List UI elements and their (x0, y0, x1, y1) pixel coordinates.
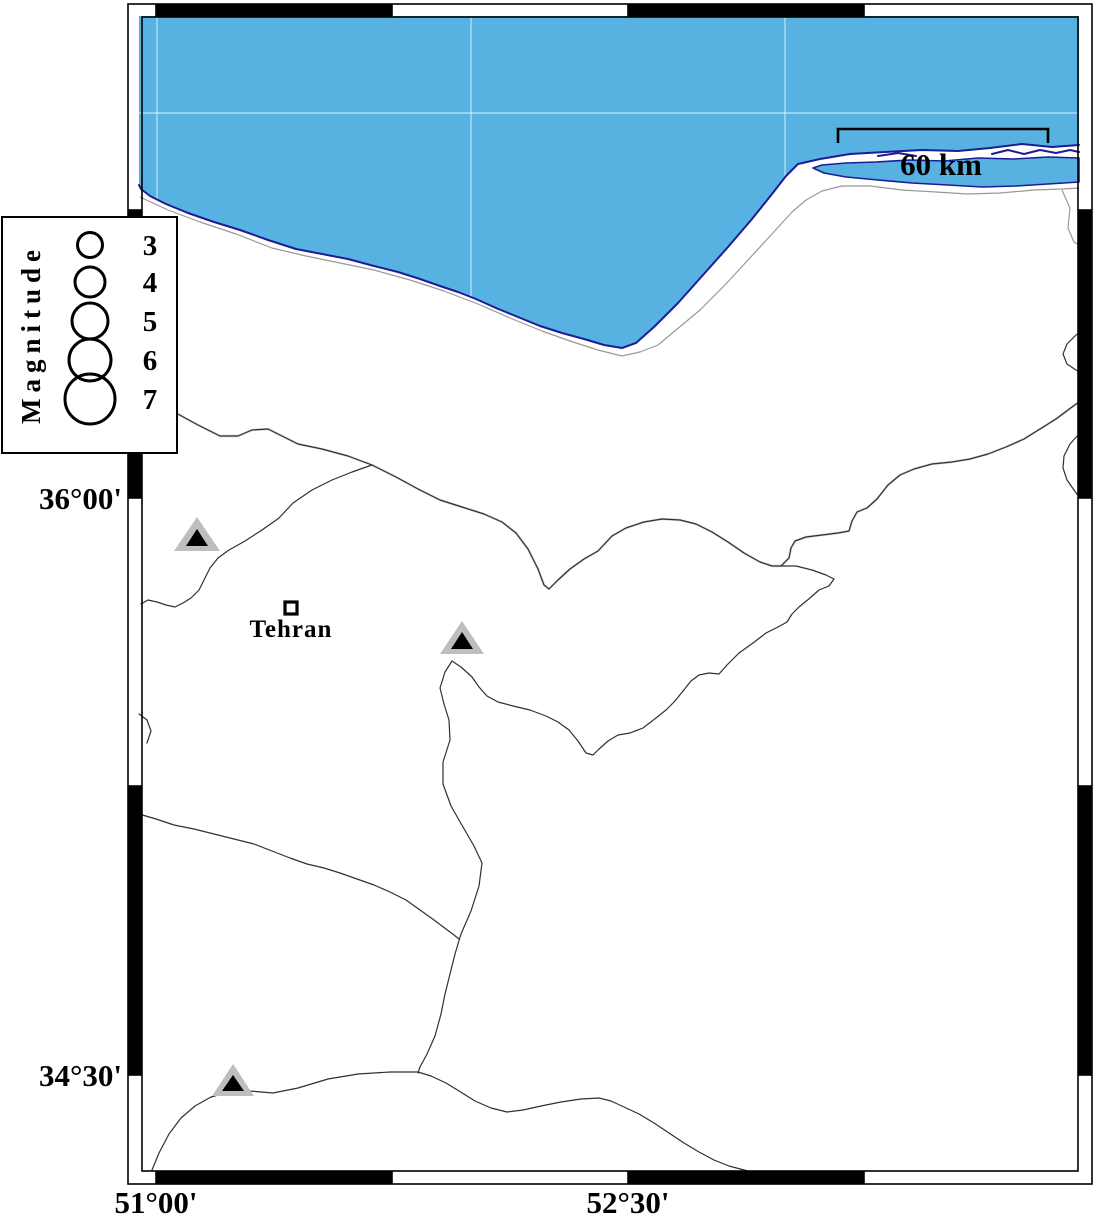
xaxis-label-51e: 51°00' (114, 1185, 197, 1219)
map-page: Magnitude 3 4 5 6 7 60 km Tehran 36°00' … (0, 0, 1097, 1219)
legend-title: Magnitude (16, 244, 46, 424)
legend-label-m3: 3 (143, 230, 158, 262)
tehran-marker (285, 602, 297, 614)
volcano-markers (174, 517, 484, 1096)
tehran-label: Tehran (250, 616, 333, 643)
magnitude-legend: Magnitude 3 4 5 6 7 (2, 217, 177, 453)
scale-bar-label: 60 km (900, 147, 982, 182)
yaxis-label-36n: 36°00' (39, 481, 122, 516)
volcano-triangle (212, 1064, 254, 1096)
legend-label-m7: 7 (143, 384, 158, 416)
volcano-triangle (174, 517, 220, 551)
legend-label-m4: 4 (143, 267, 158, 299)
map-canvas: Magnitude 3 4 5 6 7 60 km Tehran 36°00' … (0, 0, 1097, 1219)
boundary-halo (176, 397, 1086, 589)
xaxis-label-5230e: 52°30' (586, 1185, 669, 1219)
volcano-triangle (440, 621, 484, 654)
legend-label-m6: 6 (143, 345, 158, 377)
boundary-lines (139, 329, 1086, 1172)
legend-label-m5: 5 (143, 306, 158, 338)
yaxis-label-3430n: 34°30' (39, 1058, 122, 1093)
